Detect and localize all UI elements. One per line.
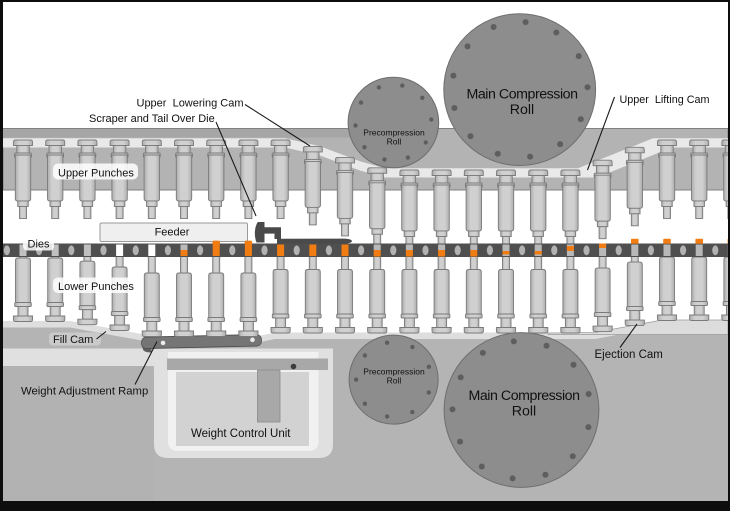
svg-text:Roll: Roll bbox=[387, 376, 402, 386]
svg-text:Fill Cam: Fill Cam bbox=[53, 334, 93, 346]
svg-text:Main Compression: Main Compression bbox=[468, 388, 579, 404]
svg-text:Upper Lifting Cam: Upper Lifting Cam bbox=[620, 94, 710, 106]
svg-text:Main Compression: Main Compression bbox=[466, 87, 577, 103]
svg-text:Scraper and Tail Over Die: Scraper and Tail Over Die bbox=[89, 113, 215, 125]
svg-text:Weight Control Unit: Weight Control Unit bbox=[191, 428, 291, 440]
svg-text:Roll: Roll bbox=[512, 404, 536, 420]
svg-text:Dies: Dies bbox=[28, 239, 51, 251]
svg-text:Weight Adjustment Ramp: Weight Adjustment Ramp bbox=[21, 386, 148, 398]
svg-text:Feeder: Feeder bbox=[155, 227, 190, 239]
svg-text:Upper Lowering Cam: Upper Lowering Cam bbox=[137, 98, 244, 110]
svg-text:Ejection Cam: Ejection Cam bbox=[595, 349, 663, 361]
svg-text:Roll: Roll bbox=[387, 137, 402, 147]
svg-text:Roll: Roll bbox=[510, 102, 534, 118]
svg-text:Lower Punches: Lower Punches bbox=[58, 281, 134, 293]
svg-text:Upper Punches: Upper Punches bbox=[58, 168, 134, 180]
